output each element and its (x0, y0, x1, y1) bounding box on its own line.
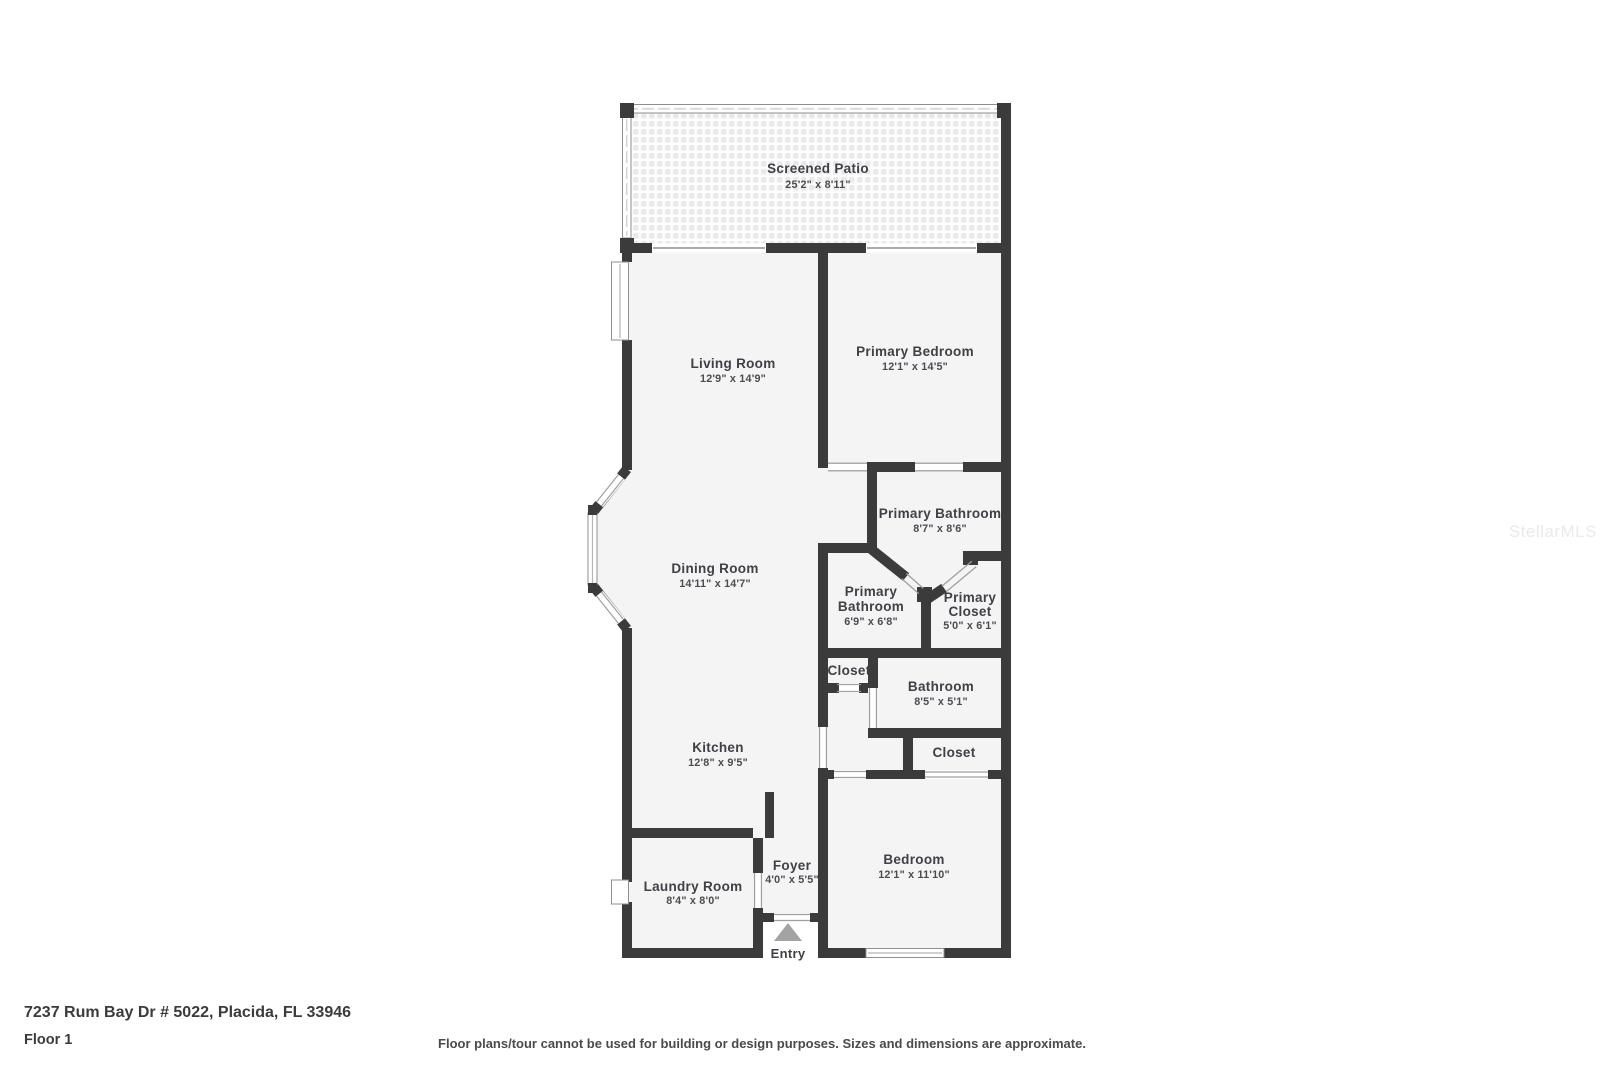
watermark-text: StellarMLS (1509, 522, 1597, 541)
label-primary-bedroom: Primary Bedroom (856, 344, 974, 359)
dims-dining-room: 14'11" x 14'7" (679, 578, 751, 590)
label-primary-closet-2: Closet (948, 604, 991, 619)
dims-bathroom: 8'5" x 5'1" (914, 696, 968, 708)
dims-living-room: 12'9" x 14'9" (700, 373, 766, 385)
dims-primary-bedroom: 12'1" x 14'5" (882, 361, 948, 373)
label-bathroom: Bathroom (908, 679, 974, 694)
label-primary-bathroom-small-1: Primary (845, 584, 898, 599)
label-foyer: Foyer (773, 858, 812, 873)
dims-primary-closet: 5'0" x 6'1" (943, 620, 997, 632)
label-kitchen: Kitchen (692, 740, 744, 755)
label-laundry-room: Laundry Room (644, 879, 743, 894)
dims-kitchen: 12'8" x 9'5" (688, 757, 748, 769)
label-screened-patio: Screened Patio (767, 161, 869, 176)
dims-laundry-room: 8'4" x 8'0" (666, 895, 720, 907)
label-bedroom: Bedroom (883, 852, 944, 867)
label-entry: Entry (771, 946, 806, 961)
floor-label: Floor 1 (24, 1032, 72, 1048)
dims-bedroom: 12'1" x 11'10" (878, 869, 950, 881)
footer: 7237 Rum Bay Dr # 5022, Placida, FL 3394… (24, 1004, 1086, 1051)
dims-primary-bathroom: 8'7" x 8'6" (913, 523, 967, 535)
label-primary-bathroom: Primary Bathroom (879, 506, 1002, 521)
label-closet-hall: Closet (827, 663, 870, 678)
laundry-window (612, 880, 629, 904)
dims-primary-bathroom-small: 6'9" x 6'8" (844, 616, 898, 628)
address-text: 7237 Rum Bay Dr # 5022, Placida, FL 3394… (24, 1004, 351, 1021)
floor-plan-canvas: Screened Patio 25'2" x 8'11" Living Room… (0, 0, 1600, 1066)
floor-plan-page: Screened Patio 25'2" x 8'11" Living Room… (0, 0, 1600, 1066)
label-closet-bedroom: Closet (932, 745, 975, 760)
dims-screened-patio: 25'2" x 8'11" (785, 179, 850, 191)
dims-foyer: 4'0" x 5'5" (765, 874, 819, 886)
patio-post-top-left (620, 103, 634, 118)
label-primary-bathroom-small-2: Bathroom (838, 599, 904, 614)
label-primary-closet-1: Primary (944, 590, 997, 605)
disclaimer-text: Floor plans/tour cannot be used for buil… (438, 1036, 1086, 1051)
label-dining-room: Dining Room (671, 561, 758, 576)
label-living-room: Living Room (690, 356, 775, 371)
